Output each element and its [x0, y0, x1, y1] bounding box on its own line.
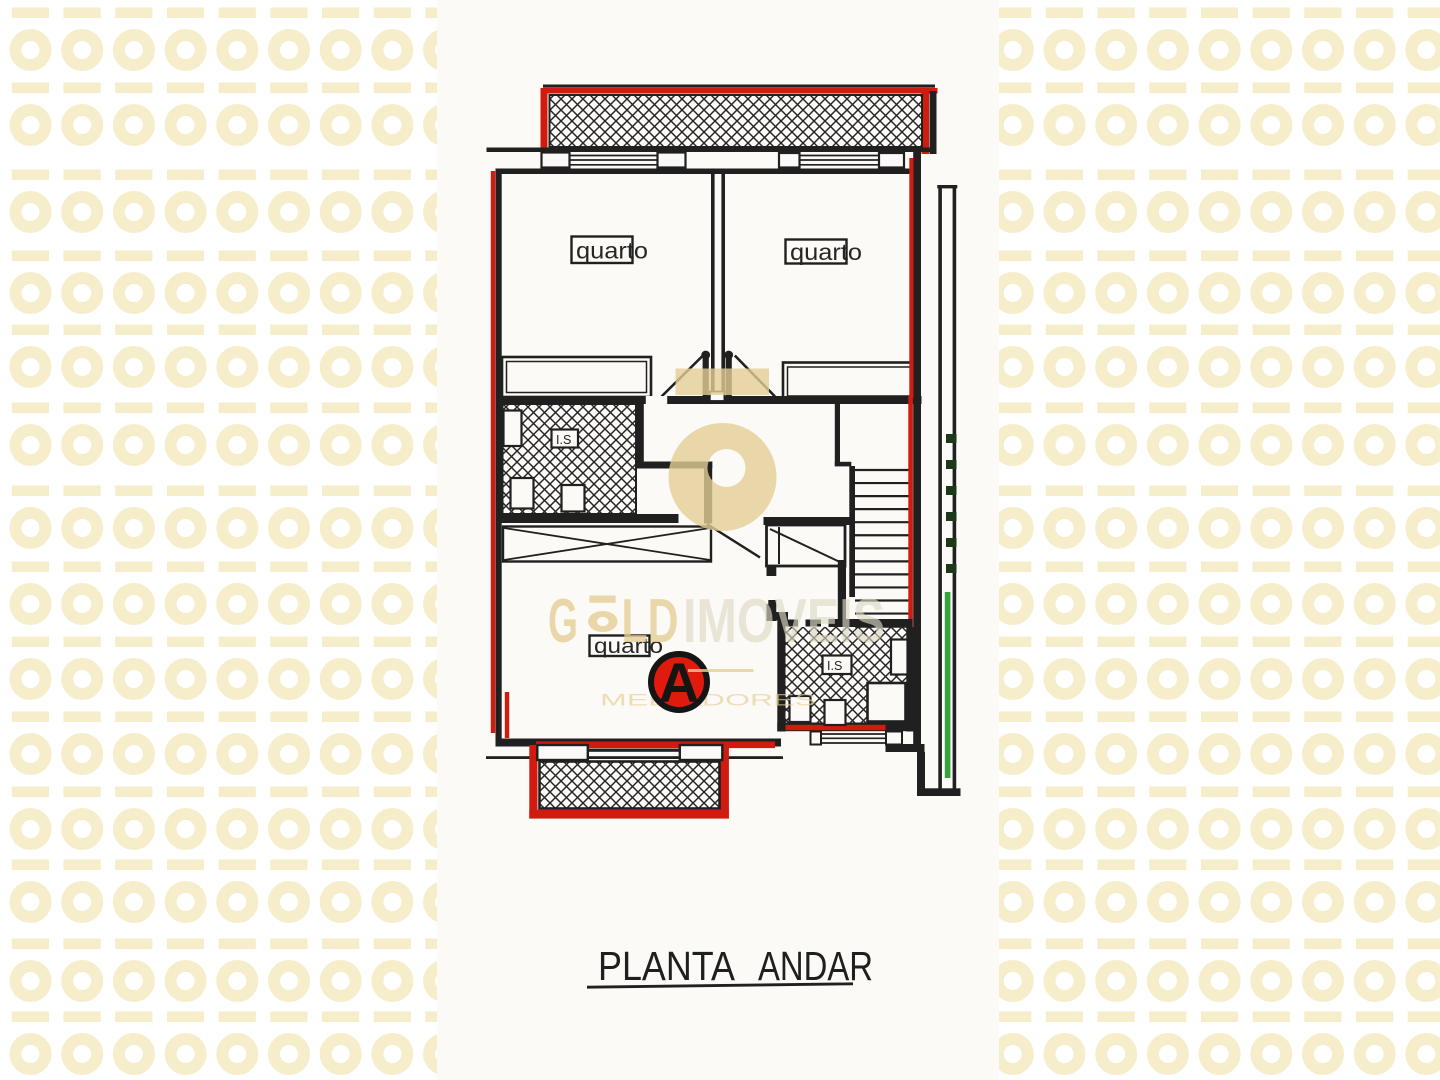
svg-text:ANDAR: ANDAR	[758, 943, 873, 989]
svg-text:IMOVEIS: IMOVEIS	[683, 586, 885, 656]
svg-text:quarto: quarto	[790, 239, 862, 265]
svg-text:LD: LD	[622, 586, 679, 656]
svg-text:G: G	[548, 586, 578, 656]
svg-text:A: A	[659, 651, 699, 714]
svg-text:PLANTA: PLANTA	[598, 943, 736, 989]
svg-text:I.S: I.S	[827, 659, 842, 673]
svg-text:I.S: I.S	[556, 433, 571, 447]
svg-text:quarto: quarto	[576, 238, 648, 264]
svg-text:MEDIADORES: MEDIADORES	[600, 691, 816, 710]
